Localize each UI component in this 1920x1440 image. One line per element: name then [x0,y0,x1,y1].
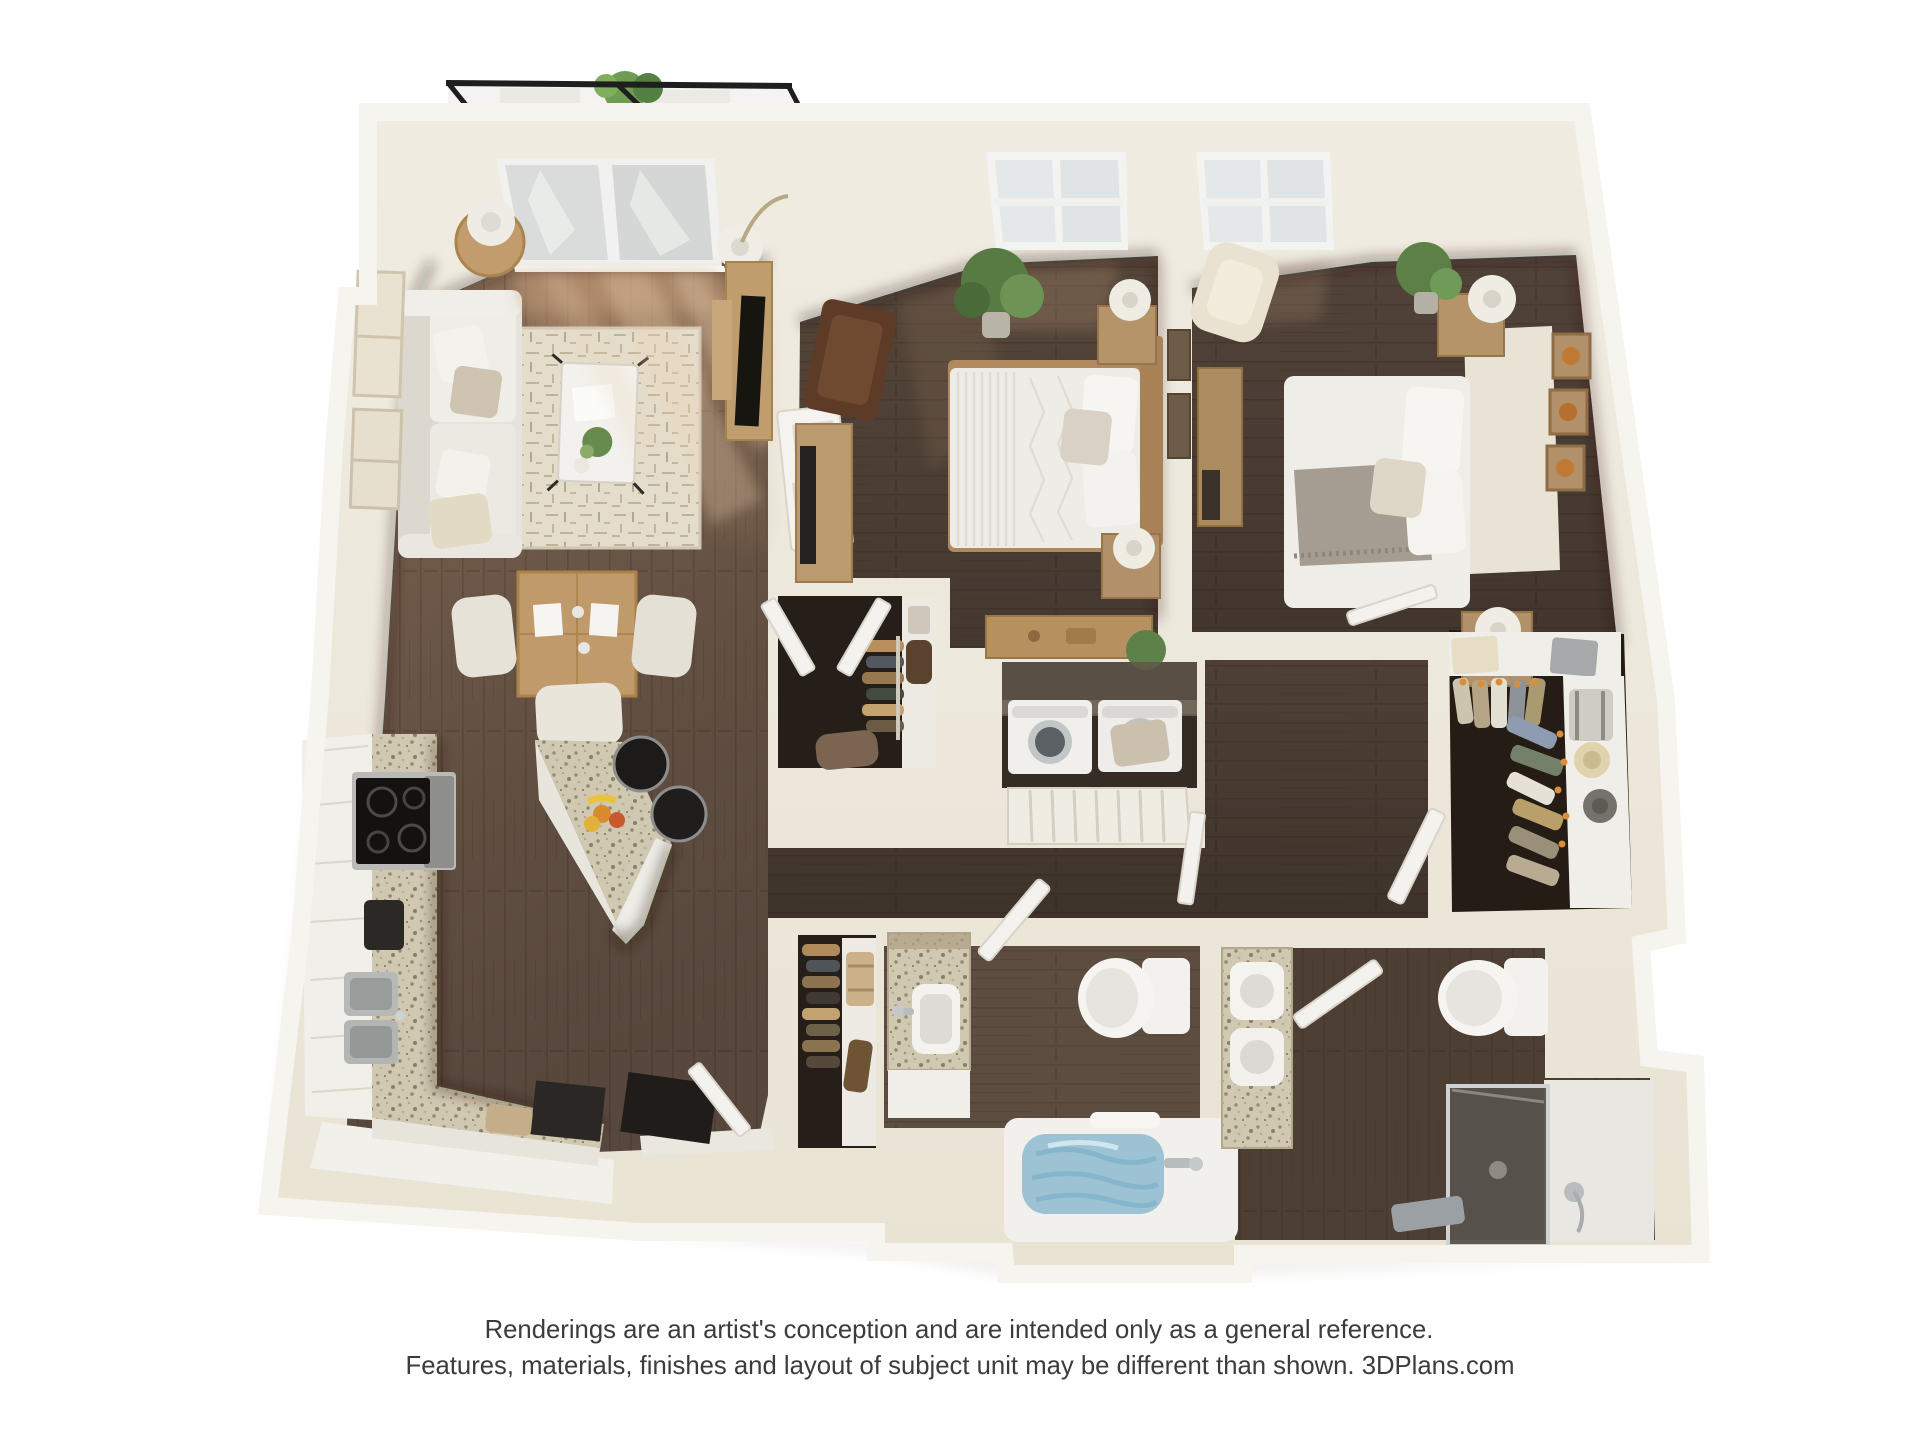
svg-text:Features, materials, finishes: Features, materials, finishes and layout… [406,1352,1515,1380]
svg-text:Renderings are an artist's con: Renderings are an artist's conception an… [485,1316,1434,1344]
